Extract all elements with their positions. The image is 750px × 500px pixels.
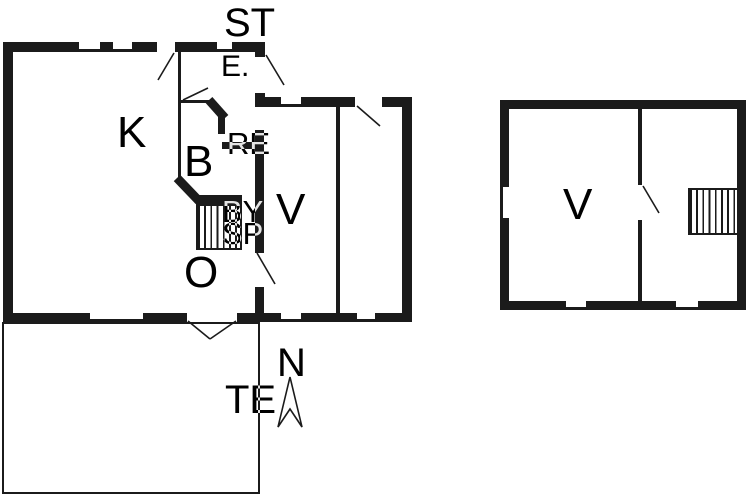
stairs-annex xyxy=(688,188,739,235)
label-north: N xyxy=(277,343,306,383)
annex-top-door-swing xyxy=(357,106,380,126)
b2-bottom-window-2 xyxy=(676,301,698,307)
label-terrace: TE xyxy=(225,380,276,420)
annex-top-wall xyxy=(255,97,412,107)
window-top-2 xyxy=(113,42,132,49)
b2-top-wall xyxy=(500,100,746,109)
b2-interior-wall-lower xyxy=(638,220,642,301)
bath-left-partition xyxy=(178,103,181,181)
b2-bottom-wall xyxy=(500,301,746,310)
label-entrance: E. xyxy=(221,52,249,82)
bath-top-partition xyxy=(181,100,212,103)
annex-interior-wall xyxy=(336,107,340,313)
annex-right-wall xyxy=(402,97,412,322)
divider-wall-lower xyxy=(255,287,264,313)
floor-plan: ST E. K B RE BY SP V O TE N V xyxy=(0,0,750,500)
window-top-1 xyxy=(79,42,100,49)
main-left-wall xyxy=(3,42,13,322)
terrace-outline xyxy=(2,322,260,494)
label-sp: SP xyxy=(222,218,263,249)
window-bottom-2 xyxy=(281,313,301,319)
label-room-v-main: V xyxy=(276,188,305,232)
window-bottom-3 xyxy=(357,313,375,319)
front-door-swing xyxy=(158,53,174,80)
label-st: ST xyxy=(224,3,275,43)
b2-interior-wall-upper xyxy=(638,109,642,185)
entrance-door-swing xyxy=(266,55,284,85)
living-to-v-door-swing xyxy=(257,253,275,284)
annex-top-door-opening xyxy=(355,97,382,107)
door-terrace-opening xyxy=(187,313,237,322)
bath-door-swing xyxy=(183,88,208,100)
annex-top-window xyxy=(281,97,301,104)
nook-vertical-wall xyxy=(218,112,225,134)
b2-bottom-window-1 xyxy=(566,301,586,307)
label-re: RE xyxy=(227,128,270,159)
label-kitchen: K xyxy=(117,111,146,155)
kitchen-entrance-partition xyxy=(178,52,181,104)
window-bottom-1 xyxy=(90,313,143,319)
door-front-opening xyxy=(157,42,175,52)
b2-interior-door-swing xyxy=(643,186,659,213)
label-room-v-annex: V xyxy=(563,183,592,227)
b2-left-window xyxy=(503,187,509,218)
label-living: O xyxy=(184,251,218,295)
label-bath: B xyxy=(184,140,213,184)
